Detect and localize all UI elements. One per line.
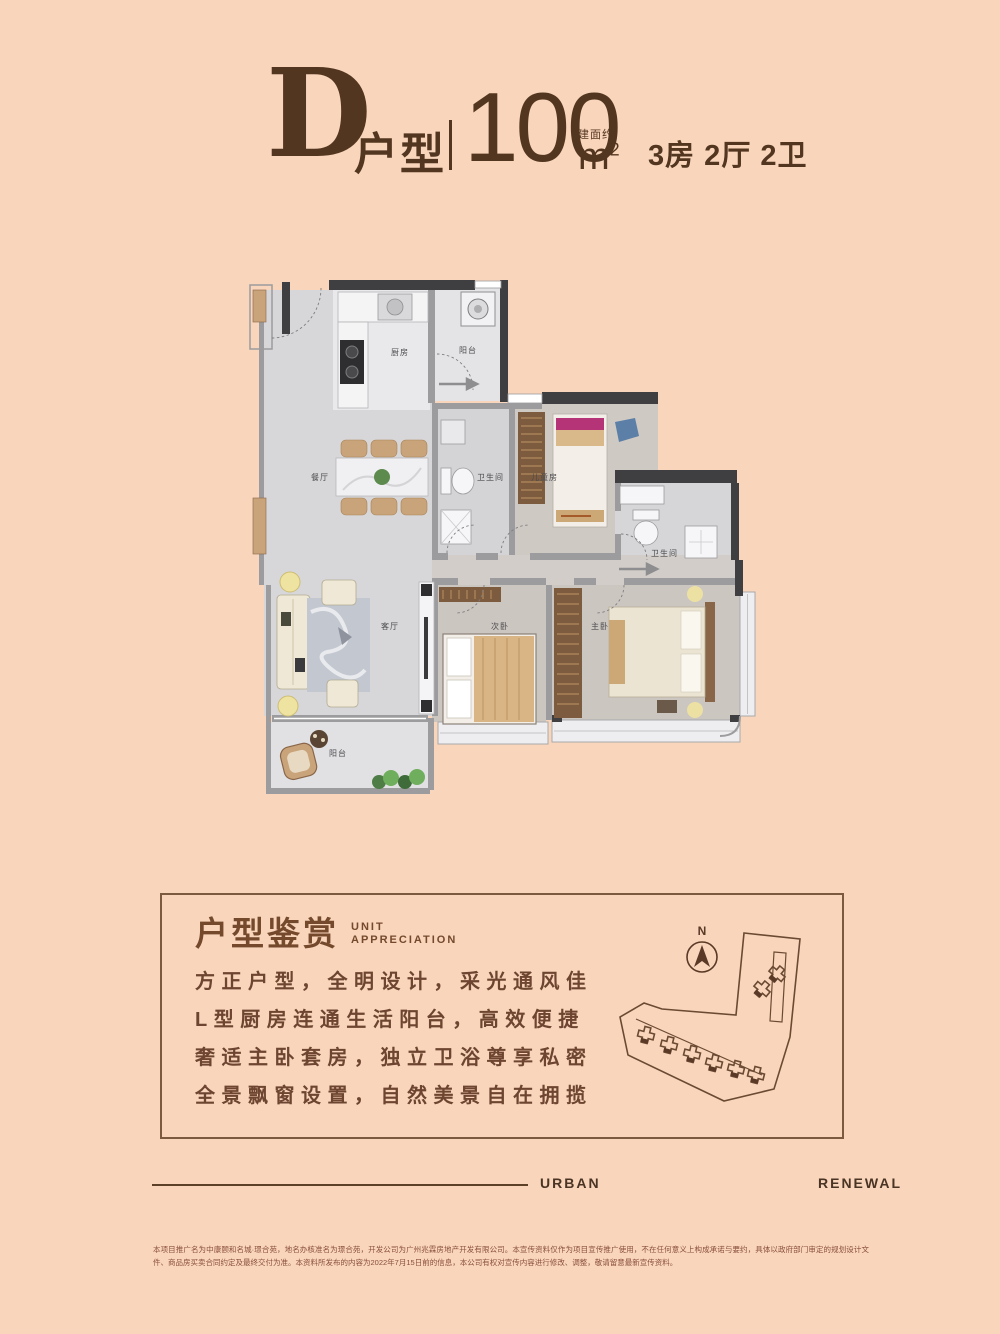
slogan-rule: [152, 1184, 528, 1186]
floorplan: 厨房 阳台 餐厅 卫生间 儿童房 卫生间 客厅 次卧 主卧 阳台: [243, 272, 763, 807]
tea-table-icon: [310, 730, 328, 748]
label-bedroom-master: 主卧: [591, 621, 609, 631]
appreciation-title-en: UNIT APPRECIATION: [351, 921, 457, 951]
label-living: 客厅: [381, 621, 399, 631]
area-unit: m2: [578, 142, 620, 172]
washing-machine-icon: [461, 292, 495, 326]
wardrobe-icon: [518, 412, 545, 504]
pouf-icon: [280, 572, 300, 592]
lamp-glow-icon: [687, 702, 703, 718]
feature-line: 全景飘窗设置，自然美景自在拥揽: [195, 1077, 593, 1115]
plant-icon: [374, 469, 390, 485]
site-plan: N: [614, 917, 829, 1112]
pouf-icon: [278, 696, 298, 716]
dining-table: [336, 440, 428, 515]
unit-type-suffix: 户型: [354, 118, 446, 182]
svg-text:N: N: [698, 924, 707, 938]
bed-master-icon: [609, 602, 715, 702]
rug-icon: [307, 598, 370, 692]
area-unit-group: 建面约 m2: [578, 126, 620, 172]
label-bath-master: 卫生间: [651, 548, 678, 558]
slogan-renewal: RENEWAL: [818, 1175, 902, 1191]
tv-console-icon: [419, 582, 434, 714]
ottoman-icon: [327, 680, 358, 707]
shower-master-icon: [685, 526, 717, 558]
ottoman-icon: [322, 580, 356, 605]
wardrobe-icon: [439, 587, 501, 602]
area-unit-m: m: [578, 136, 610, 178]
feature-line: 奢适主卧套房，独立卫浴尊享私密: [195, 1039, 593, 1077]
toilet-icon: [441, 468, 474, 494]
stove-icon: [340, 340, 364, 384]
flyer-canvas: D 户型 100 建面约 m2 3房 2厅 2卫: [0, 0, 1000, 1334]
label-balcony-top: 阳台: [459, 345, 477, 355]
label-bath-main: 卫生间: [477, 472, 504, 482]
feature-line: 方正户型，全明设计，采光通风佳: [195, 963, 593, 1001]
feature-list: 方正户型，全明设计，采光通风佳 L型厨房连通生活阳台，高效便捷 奢适主卧套房，独…: [195, 963, 593, 1115]
appreciation-title-en-line1: UNIT: [351, 921, 385, 933]
kids-bed-icon: [553, 414, 607, 527]
area-unit-sup: 2: [610, 139, 620, 159]
title-divider: [449, 120, 452, 170]
bed-second-icon: [443, 634, 536, 724]
feature-line: L型厨房连通生活阳台，高效便捷: [195, 1001, 593, 1039]
label-balcony-bottom: 阳台: [329, 748, 347, 758]
site-buildings: [636, 963, 788, 1085]
unit-appreciation-box: 户型鉴赏 UNIT APPRECIATION 方正户型，全明设计，采光通风佳 L…: [160, 893, 844, 1139]
label-kitchen: 厨房: [391, 347, 409, 357]
sofa-icon: [277, 595, 310, 689]
label-kids-room: 儿童房: [531, 472, 558, 482]
slogan-urban: URBAN: [540, 1175, 601, 1191]
wardrobe-icon: [554, 588, 582, 718]
appreciation-heading: 户型鉴赏 UNIT APPRECIATION: [195, 917, 457, 950]
appreciation-title-cn: 户型鉴赏: [195, 917, 339, 950]
label-dining: 餐厅: [311, 473, 329, 482]
layout-spec: 3房 2厅 2卫: [648, 132, 808, 174]
disclaimer-text: 本项目推广名为中康颐和名城·璟合苑，地名办核准名为璟合苑，开发公司为广州兆霖房地…: [153, 1243, 869, 1269]
appreciation-title-en-line2: APPRECIATION: [351, 934, 457, 946]
sink-icon: [378, 294, 412, 320]
lamp-glow-icon: [687, 586, 703, 602]
bench-icon: [657, 700, 677, 713]
site-boundary: [620, 933, 800, 1101]
shower-icon: [441, 510, 471, 544]
label-bedroom-second: 次卧: [491, 621, 509, 631]
compass-icon: N: [687, 924, 717, 972]
